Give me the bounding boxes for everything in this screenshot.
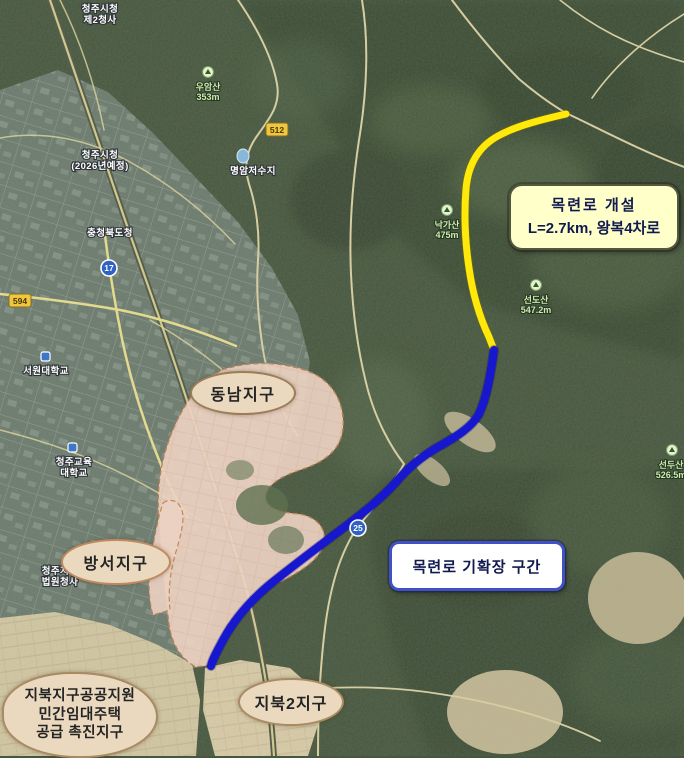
district-label-dongnam: 동남지구: [190, 371, 296, 415]
svg-text:475m: 475m: [435, 230, 458, 240]
road-badge-512: 512: [266, 123, 288, 136]
satellite-grain: [0, 0, 684, 756]
svg-text:서원대학교: 서원대학교: [23, 365, 69, 377]
svg-text:512: 512: [270, 125, 284, 135]
svg-text:청주시청: 청주시청: [82, 3, 119, 15]
svg-text:제2청사: 제2청사: [83, 14, 116, 26]
svg-text:선두산: 선두산: [659, 459, 684, 470]
district-label-jibuk2-text: 지북2지구: [255, 690, 328, 714]
svg-text:충청북도청: 충청북도청: [87, 227, 133, 239]
district-label-bangseo-text: 방서지구: [84, 550, 149, 574]
road-badge-17: 17: [101, 260, 117, 276]
svg-text:명암저수지: 명암저수지: [230, 165, 276, 177]
svg-text:526.5m: 526.5m: [656, 470, 684, 480]
callout-widened-section: 목련로 기확장 구간: [389, 541, 565, 591]
district-label-dongnam-text: 동남지구: [211, 381, 276, 405]
svg-text:우암산: 우암산: [196, 81, 222, 92]
svg-text:선도산: 선도산: [524, 294, 550, 305]
map-figure: 512 594 17 25 청주시청 제2청사 명암저수지 우암산 353m 충…: [0, 0, 684, 756]
jibuk-promo-line2: 민간임대주택: [38, 706, 121, 725]
road-badge-25: 25: [350, 520, 366, 536]
svg-text:낙가산: 낙가산: [435, 219, 461, 230]
svg-text:(2026년예정): (2026년예정): [71, 160, 128, 172]
district-label-jibuk-promo: 지북지구공공지원 민간임대주택 공급 촉진지구: [2, 672, 158, 758]
satellite-map: 512 594 17 25 청주시청 제2청사 명암저수지 우암산 353m 충…: [0, 0, 684, 756]
svg-text:353m: 353m: [196, 92, 219, 102]
callout-new-road-title: 목련로 개설: [551, 194, 636, 217]
district-label-jibuk2: 지북2지구: [238, 678, 344, 726]
svg-text:법원청사: 법원청사: [42, 576, 79, 588]
svg-text:청주교육: 청주교육: [56, 456, 93, 468]
svg-text:547.2m: 547.2m: [521, 305, 552, 315]
svg-text:17: 17: [104, 263, 114, 273]
callout-widened-section-text: 목련로 기확장 구간: [413, 556, 542, 577]
callout-new-road-spec: L=2.7km, 왕복4차로: [528, 217, 660, 240]
svg-text:대학교: 대학교: [60, 467, 87, 479]
svg-text:594: 594: [13, 296, 27, 306]
jibuk-promo-line3: 공급 촉진지구: [36, 724, 124, 743]
road-badge-594: 594: [9, 294, 31, 307]
svg-text:25: 25: [353, 523, 363, 533]
svg-text:청주시청: 청주시청: [82, 149, 119, 161]
reservoir-dot: [237, 149, 249, 163]
callout-new-road: 목련로 개설 L=2.7km, 왕복4차로: [509, 184, 679, 250]
jibuk-promo-line1: 지북지구공공지원: [25, 687, 136, 706]
district-label-bangseo: 방서지구: [61, 539, 171, 585]
